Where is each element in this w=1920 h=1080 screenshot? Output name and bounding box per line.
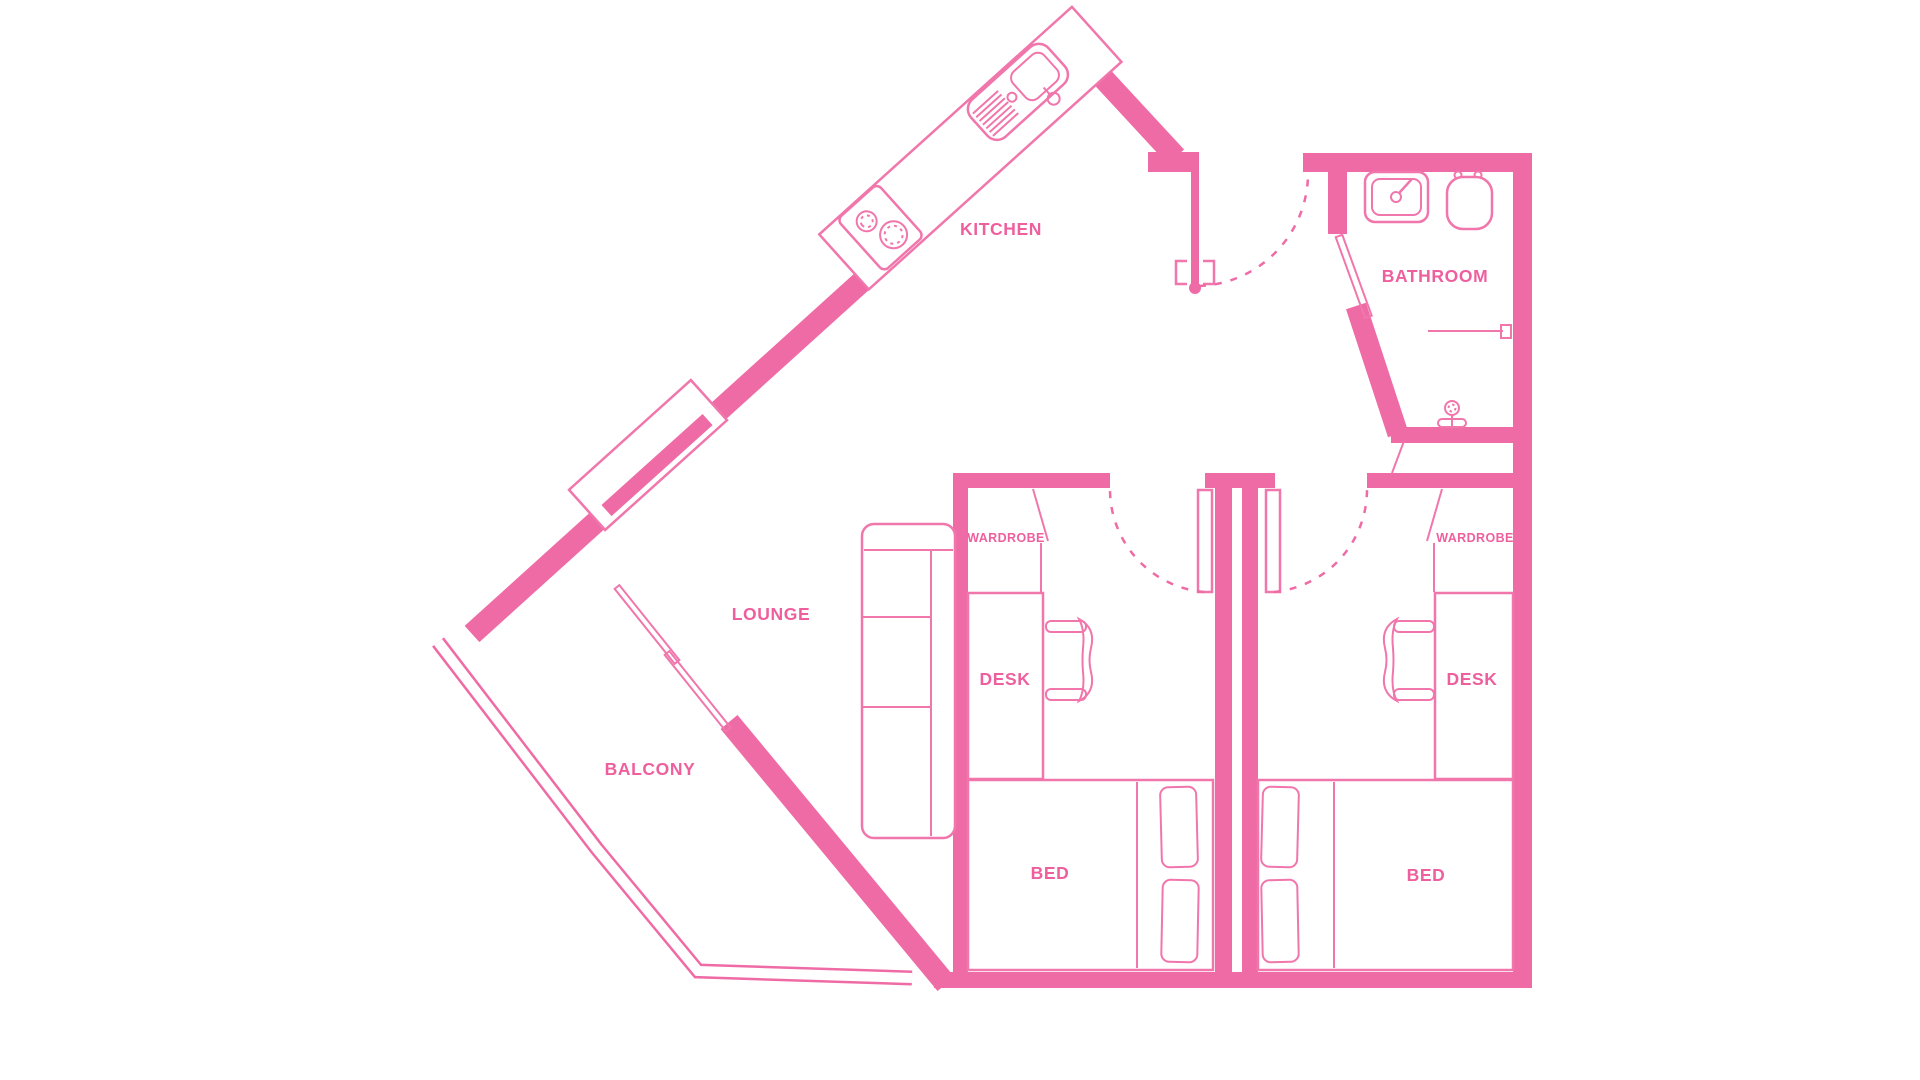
bathroom-wall-return-line	[1392, 441, 1404, 473]
bathroom-tap-icon	[1391, 192, 1401, 202]
entry-wall-stub	[1148, 152, 1199, 172]
entry-door-handle-left-icon	[1176, 261, 1187, 284]
bathroom-label: BATHROOM	[1382, 266, 1489, 286]
bathroom-sink	[1365, 172, 1428, 222]
bathroom-bottom-wall	[1391, 427, 1513, 443]
kitchen-fixtures	[819, 7, 1121, 289]
kitchen-label: KITCHEN	[960, 219, 1042, 239]
balcony-railing-outline	[438, 642, 912, 978]
toilet	[1447, 172, 1492, 230]
entry-door-handle-right-icon	[1203, 261, 1214, 284]
bedroom-right-chair	[1384, 619, 1434, 701]
bedroom-left-door-swing-arc	[1110, 489, 1204, 592]
entry-door-swing-arc	[1199, 176, 1308, 286]
floor-plan: BALCONY KITCHEN	[0, 0, 1920, 1080]
bedroom-right-bed-label: BED	[1407, 865, 1446, 885]
entry-door	[1176, 172, 1308, 294]
entry-door-leaf	[1191, 172, 1199, 286]
central-wall-left-leaf	[1215, 488, 1232, 972]
bedroom-right-bed	[1258, 780, 1513, 970]
bedroom-left-bed-label: BED	[1031, 863, 1070, 883]
central-wall-right-leaf	[1242, 488, 1258, 972]
central-wall-header	[1205, 473, 1275, 488]
bedroom-right-wardrobe-label: WARDROBE	[1436, 531, 1514, 545]
bathroom: BATHROOM	[1336, 172, 1511, 430]
bedroom-left-top-wall	[953, 473, 1110, 488]
towel-rail	[1428, 325, 1511, 338]
bedroom-right-door-leaf	[1266, 490, 1280, 592]
bedroom-left-wardrobe-label: WARDROBE	[967, 531, 1045, 545]
balcony-label: BALCONY	[605, 759, 696, 779]
right-wall	[1513, 153, 1532, 988]
floor-plan-page: BALCONY KITCHEN	[0, 0, 1920, 1080]
toilet-bowl-icon	[1447, 177, 1492, 229]
lounge-label: LOUNGE	[732, 604, 810, 624]
bedroom-right-desk-label: DESK	[1446, 669, 1497, 689]
bedroom-left: WARDROBE DESK BED	[967, 489, 1213, 970]
bedroom-left-desk-label: DESK	[979, 669, 1030, 689]
bedroom-right-top-wall	[1367, 473, 1513, 488]
sofa	[862, 524, 955, 838]
bottom-wall	[934, 972, 1532, 988]
bedroom-left-door-leaf	[1198, 490, 1212, 592]
bathroom-angled-wall	[1356, 306, 1398, 434]
bedroom-right-door-swing-arc	[1274, 489, 1367, 592]
bathroom-left-wall	[1328, 172, 1347, 234]
bedroom-right: WARDROBE DESK BED	[1258, 489, 1514, 970]
kitchen-counter	[819, 7, 1121, 289]
entry-door-pivot-icon	[1189, 282, 1201, 294]
bedroom-left-bed	[968, 780, 1213, 970]
bathroom-top-wall	[1303, 153, 1532, 172]
balcony: BALCONY	[438, 585, 912, 978]
bedroom-left-chair	[1046, 619, 1092, 701]
balcony-railing-fill	[438, 642, 912, 978]
lounge-sideboard	[569, 380, 727, 530]
shower-head	[1438, 401, 1466, 429]
